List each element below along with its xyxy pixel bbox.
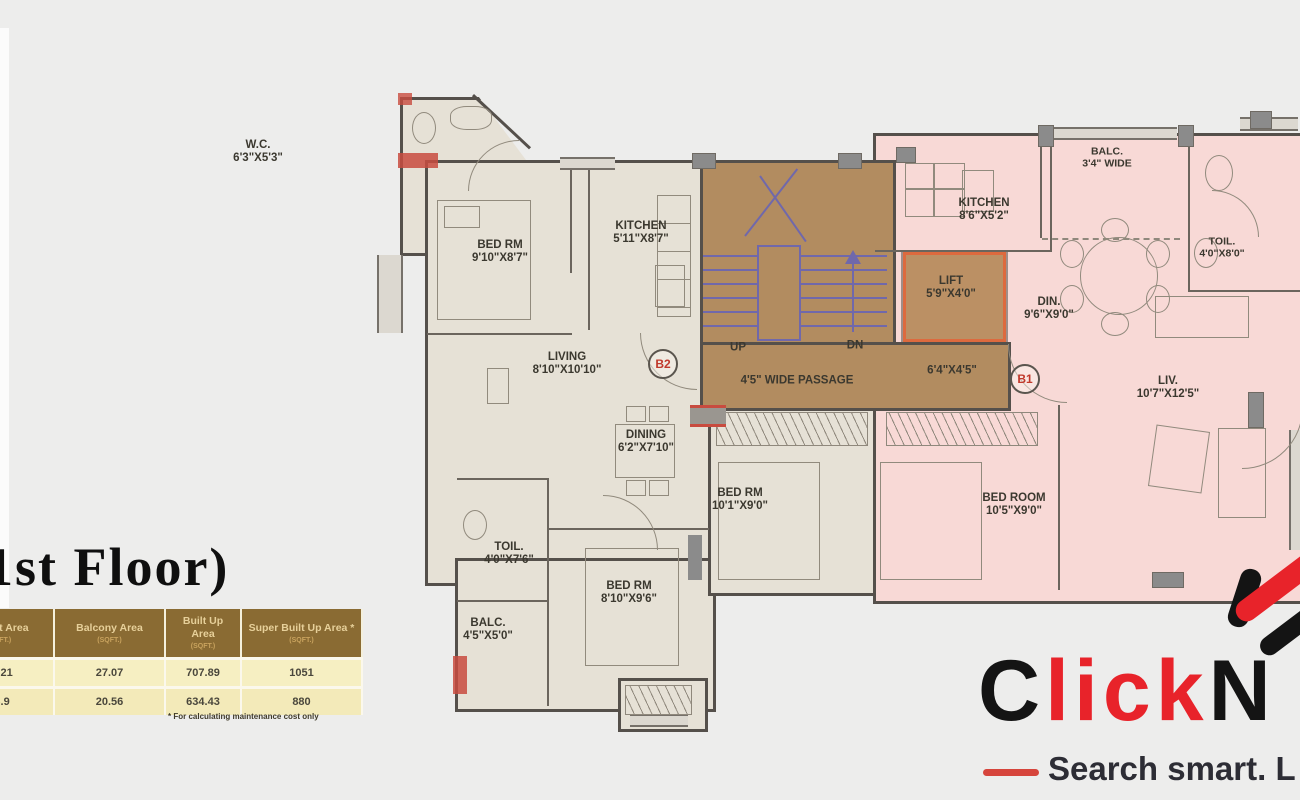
balcony-rail	[630, 714, 688, 727]
wall-pier	[1178, 125, 1194, 147]
brand-wordmark: ClickN	[978, 642, 1276, 741]
passage-label: 4'5" WIDE PASSAGE	[741, 375, 854, 388]
mirror	[487, 368, 509, 404]
partition	[1040, 138, 1042, 238]
wall-pier	[692, 153, 716, 169]
room-label-dining: DINING6'2"X7'10"	[618, 429, 674, 455]
partition	[688, 535, 702, 580]
stair-label-dn: DN	[847, 340, 864, 353]
balcony-rail	[1045, 127, 1177, 140]
unit-badge-b1: B1	[1010, 364, 1040, 394]
unit-badge-b2: B2	[648, 349, 678, 379]
red-sill	[690, 405, 726, 427]
floor-plan-page: W.C.6'3"X5'3" BED RM9'10"X8'7" KITCHEN5'…	[0, 0, 1300, 800]
wall-pier	[1250, 111, 1272, 129]
col-header-carpet-area: Carpet Area(SQFT.)	[0, 609, 55, 657]
room-label-lobby-dims: 6'4"X4'5"	[927, 365, 977, 378]
room-label-kitchen-b1: KITCHEN8'6"X5'2"	[958, 197, 1009, 223]
stair-landing	[757, 245, 801, 341]
partition	[1188, 290, 1300, 292]
wash-basin	[463, 510, 487, 540]
cell-builtup-1: 707.89	[166, 657, 242, 686]
partition	[875, 250, 1052, 252]
room-label-kitchen-b2: KITCHEN5'11"X8'7"	[613, 220, 668, 246]
toilet-wc	[1205, 155, 1233, 191]
red-sill	[398, 93, 412, 105]
chair	[1101, 218, 1129, 242]
window-hatch	[625, 685, 692, 715]
red-sill	[453, 656, 467, 694]
room-label-liv: LIV.10'7"X12'5"	[1137, 375, 1199, 401]
sofa	[1218, 428, 1266, 518]
room-label-lift: LIFT5'9"X4'0"	[926, 275, 976, 301]
partition	[427, 333, 572, 335]
chair	[1101, 312, 1129, 336]
chair	[649, 480, 669, 496]
cell-super-1: 1051	[242, 657, 363, 686]
page-title: (1st Floor)	[0, 536, 229, 598]
room-label-toil-b2: TOIL.4'0"X7'6"	[484, 541, 534, 567]
table-footnote: * For calculating maintenance cost only	[168, 712, 319, 721]
chair	[649, 406, 669, 422]
room-label-balc-b1: BALC.3'4" WIDE	[1082, 146, 1132, 170]
cell-builtup-2: 634.43	[166, 686, 242, 715]
room-label-toil-b1: TOIL.4'0"X8'0"	[1199, 236, 1244, 260]
room-label-living: LIVING8'10"X10'10"	[533, 351, 602, 377]
room-label-din: DIN.9'6"X9'0"	[1024, 296, 1074, 322]
window	[560, 157, 615, 170]
room-label-bed-b1: BED ROOM10'5"X9'0"	[982, 492, 1045, 518]
partition	[457, 600, 549, 602]
partition	[570, 163, 572, 273]
kitchen-sink	[655, 265, 685, 307]
wash-basin	[450, 106, 492, 130]
wall-pier	[1152, 572, 1184, 588]
cell-balcony-2: 20.56	[55, 686, 166, 715]
wall-pier	[1038, 125, 1054, 147]
partition	[547, 480, 549, 706]
partition	[1050, 135, 1052, 250]
window	[1289, 430, 1300, 550]
table-row: 26.9 20.56 634.43 880	[0, 686, 363, 715]
brand-tagline: Search smart. L	[1048, 750, 1296, 788]
wardrobe	[886, 412, 1038, 446]
wall-pier	[838, 153, 862, 169]
room-label-bed1: BED RM9'10"X8'7"	[472, 239, 528, 265]
wardrobe	[716, 412, 868, 446]
kitchen-hob	[905, 163, 965, 217]
red-sill	[398, 153, 438, 168]
window	[377, 255, 403, 333]
stair-arrow-line	[852, 262, 854, 332]
cell-carpet-1: 41.21	[0, 657, 55, 686]
room-label-bed2: BED RM8'10"X9'6"	[601, 580, 657, 606]
toilet-wc	[412, 112, 436, 144]
table-row: 41.21 27.07 707.89 1051	[0, 657, 363, 686]
col-header-built-up-area: Built Up Area(SQFT.)	[166, 609, 242, 657]
chair	[626, 406, 646, 422]
tv-unit	[1148, 425, 1210, 494]
bed	[718, 462, 820, 580]
room-label-balc-b2: BALC.4'5"X5'0"	[463, 617, 513, 643]
bed	[880, 462, 982, 580]
partition	[1188, 138, 1190, 290]
pillow	[444, 206, 480, 228]
partition	[457, 478, 549, 480]
bed	[585, 548, 679, 666]
chair	[1060, 240, 1084, 268]
area-table: Carpet Area(SQFT.) Balcony Area(SQFT.) B…	[0, 609, 363, 715]
chair	[1146, 240, 1170, 268]
stair-label-up: UP	[730, 342, 746, 355]
room-label-wc: W.C.6'3"X5'3"	[233, 139, 283, 165]
wall-pier	[896, 147, 916, 163]
tagline-dash	[983, 769, 1039, 776]
col-header-balcony-area: Balcony Area(SQFT.)	[55, 609, 166, 657]
cell-balcony-1: 27.07	[55, 657, 166, 686]
partition	[1058, 405, 1060, 590]
chair	[626, 480, 646, 496]
cell-carpet-2: 26.9	[0, 686, 55, 715]
room-label-bed3: BED RM10'1"X9'0"	[712, 487, 768, 513]
cell-super-2: 880	[242, 686, 363, 715]
col-header-super-built-up-area: Super Built Up Area *(SQFT.)	[242, 609, 363, 657]
sofa	[1155, 296, 1249, 338]
partition	[588, 163, 590, 330]
left-edge-strip	[0, 28, 9, 608]
